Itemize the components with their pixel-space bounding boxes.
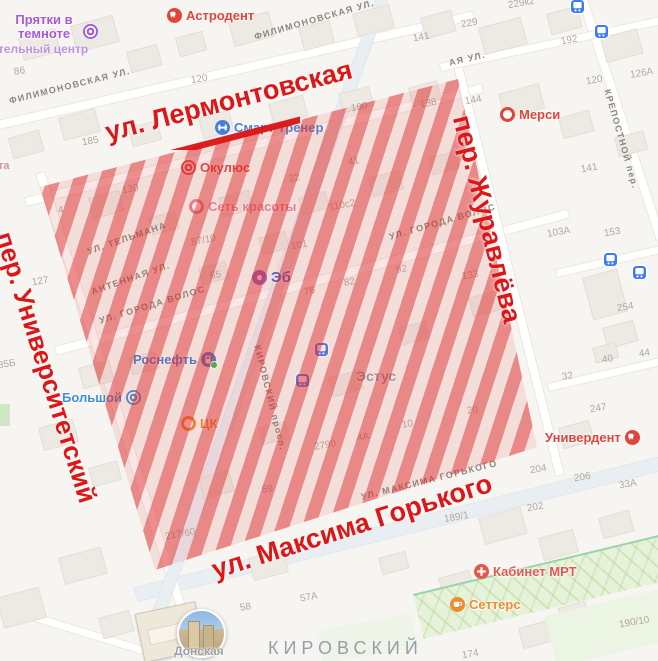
building bbox=[126, 44, 163, 74]
house-number: 2790 bbox=[313, 438, 337, 453]
poi-bolshoy[interactable]: Большой bbox=[62, 390, 141, 405]
building bbox=[88, 190, 125, 220]
street-name-label: УЛ. ТЕЛЬМАНА bbox=[86, 220, 168, 257]
poi-label: Астродент bbox=[186, 8, 254, 23]
dumbbell-icon bbox=[215, 120, 230, 135]
map-canvas[interactable]: ФИЛИМОНОВСКАЯ УЛ.ФИЛИМОНОВСКАЯ УЛ.АЯ УЛ.… bbox=[0, 0, 658, 661]
transit-stop-icon[interactable] bbox=[604, 253, 617, 266]
poi-label: Окулюс bbox=[200, 160, 250, 175]
house-number: 141 bbox=[580, 162, 598, 176]
transit-stop-icon[interactable] bbox=[633, 266, 646, 279]
poi-label: Мерси bbox=[519, 107, 560, 122]
house-number: 133 bbox=[461, 269, 479, 283]
poi-estus[interactable]: Эстус bbox=[356, 368, 396, 384]
poi-label: Смарт Тренер bbox=[234, 120, 323, 135]
ring-icon bbox=[500, 107, 515, 122]
poi-set-krasoty[interactable]: Сеть красоты bbox=[189, 199, 296, 214]
poi-univerdent[interactable]: Универдент bbox=[545, 430, 640, 445]
house-number: 33А bbox=[618, 478, 637, 492]
house-number: 35Б bbox=[0, 358, 17, 372]
house-number: 59 bbox=[261, 483, 274, 496]
poi-label: Сеттерс bbox=[469, 597, 521, 612]
poi-pryatki-v-temnote[interactable]: Прятки в темноте bbox=[8, 13, 80, 40]
ring-icon bbox=[181, 416, 196, 431]
poi-label: ЦК bbox=[200, 416, 217, 431]
poi-rosneft[interactable]: Роснефть bbox=[133, 352, 216, 367]
poi-label: Кабинет МРТ bbox=[493, 564, 577, 579]
building bbox=[558, 110, 595, 140]
building bbox=[175, 31, 207, 58]
house-number: 76 bbox=[303, 285, 316, 298]
poi-label: Эб bbox=[271, 269, 291, 286]
poi-okulus[interactable]: Окулюс bbox=[181, 160, 250, 175]
house-number: 120 bbox=[585, 74, 603, 88]
coffee-cup-icon bbox=[450, 597, 465, 612]
house-number: 103А bbox=[546, 225, 571, 240]
building bbox=[58, 547, 108, 585]
tooth-icon bbox=[167, 8, 182, 23]
building bbox=[398, 321, 430, 346]
poi-label: Донская bbox=[174, 644, 224, 658]
house-number: 101 bbox=[290, 239, 308, 253]
circle-logo-icon bbox=[181, 160, 196, 175]
house-number: 204 bbox=[529, 463, 547, 477]
house-number: 65 bbox=[209, 269, 222, 282]
transit-stop-icon[interactable] bbox=[595, 25, 608, 38]
building bbox=[98, 610, 135, 640]
poi-sublabel: тельный центр bbox=[0, 42, 88, 56]
circle-logo-icon bbox=[83, 24, 98, 39]
house-number: 20 bbox=[466, 404, 479, 417]
poi-kabinet-mrt[interactable]: Кабинет МРТ bbox=[474, 564, 577, 579]
poi-label: Эстус bbox=[356, 368, 396, 384]
medical-cross-icon bbox=[474, 564, 489, 579]
building bbox=[368, 170, 404, 198]
house-number: 86 bbox=[13, 65, 26, 78]
house-number: 229к2 bbox=[507, 0, 535, 11]
house-number: 82 bbox=[343, 276, 356, 289]
house-number: 40 bbox=[601, 353, 614, 366]
ring-icon bbox=[189, 199, 204, 214]
street-name-label: УЛ. ГОРОДА ВОЛОС bbox=[98, 284, 207, 326]
building bbox=[598, 510, 635, 540]
fuel-pump-icon bbox=[201, 352, 216, 367]
district-label: КИРОВСКИЙ bbox=[268, 638, 423, 659]
house-number: 22 bbox=[288, 172, 301, 185]
house-number: 185 bbox=[81, 135, 99, 149]
house-number: 192 bbox=[560, 34, 578, 48]
street-name-label: АНТЕННАЯ УЛ. bbox=[90, 260, 171, 296]
house-number: 202 bbox=[526, 501, 544, 515]
transit-stop-icon[interactable] bbox=[296, 374, 309, 387]
house-number: 120 bbox=[190, 73, 208, 87]
poi-donskaya[interactable]: Донская bbox=[174, 644, 224, 658]
park-area bbox=[0, 404, 10, 426]
poi-tsk[interactable]: ЦК bbox=[181, 416, 217, 431]
house-number: 126А bbox=[629, 66, 654, 81]
building bbox=[378, 551, 410, 576]
house-number: 10 bbox=[401, 418, 414, 431]
house-number: 110с2 bbox=[328, 198, 356, 213]
house-number: 138 bbox=[419, 97, 437, 111]
circle-logo-icon bbox=[126, 390, 141, 405]
house-number: 247 bbox=[589, 402, 607, 416]
house-number: 174 bbox=[461, 648, 479, 661]
house-number: 254 bbox=[616, 301, 634, 315]
house-number: 130 bbox=[121, 183, 139, 197]
poi-mersi[interactable]: Мерси bbox=[500, 107, 560, 122]
house-number: 144 bbox=[464, 94, 482, 108]
house-number: 153 bbox=[603, 226, 621, 240]
poi-astrodent[interactable]: Астродент bbox=[167, 8, 254, 23]
house-number: 92 bbox=[395, 263, 408, 276]
transit-stop-icon[interactable] bbox=[315, 343, 328, 356]
building bbox=[298, 191, 330, 216]
poi-label: Сеть красоты bbox=[208, 199, 296, 214]
poi-smart-trener[interactable]: Смарт Тренер bbox=[215, 120, 323, 135]
poi-label: Роснефть bbox=[133, 352, 197, 367]
tooth-icon bbox=[625, 430, 640, 445]
house-number: 44 bbox=[638, 347, 651, 360]
house-number: 58 bbox=[239, 601, 252, 614]
house-number: 229 bbox=[460, 17, 478, 31]
house-number: 41 bbox=[347, 155, 360, 168]
poi-setters[interactable]: Сеттерс bbox=[450, 597, 521, 612]
dot-icon bbox=[252, 270, 267, 285]
house-number: 57А bbox=[299, 591, 318, 605]
transit-stop-icon[interactable] bbox=[571, 0, 584, 13]
annotation-street-bottom: ул. Максима Горького bbox=[208, 468, 496, 585]
building bbox=[8, 130, 45, 160]
house-number: 141 bbox=[412, 31, 430, 45]
poi-label: Универдент bbox=[545, 430, 621, 445]
poi-eb[interactable]: Эб bbox=[252, 269, 291, 286]
house-number: 32 bbox=[561, 370, 574, 383]
house-number: 4 bbox=[57, 205, 64, 217]
poi-label-fragment: та bbox=[0, 160, 10, 172]
green-dot bbox=[210, 361, 218, 369]
house-number: 87/10 bbox=[190, 233, 217, 248]
house-number: 4А bbox=[356, 431, 370, 444]
poi-label: Прятки в темноте bbox=[8, 13, 80, 40]
